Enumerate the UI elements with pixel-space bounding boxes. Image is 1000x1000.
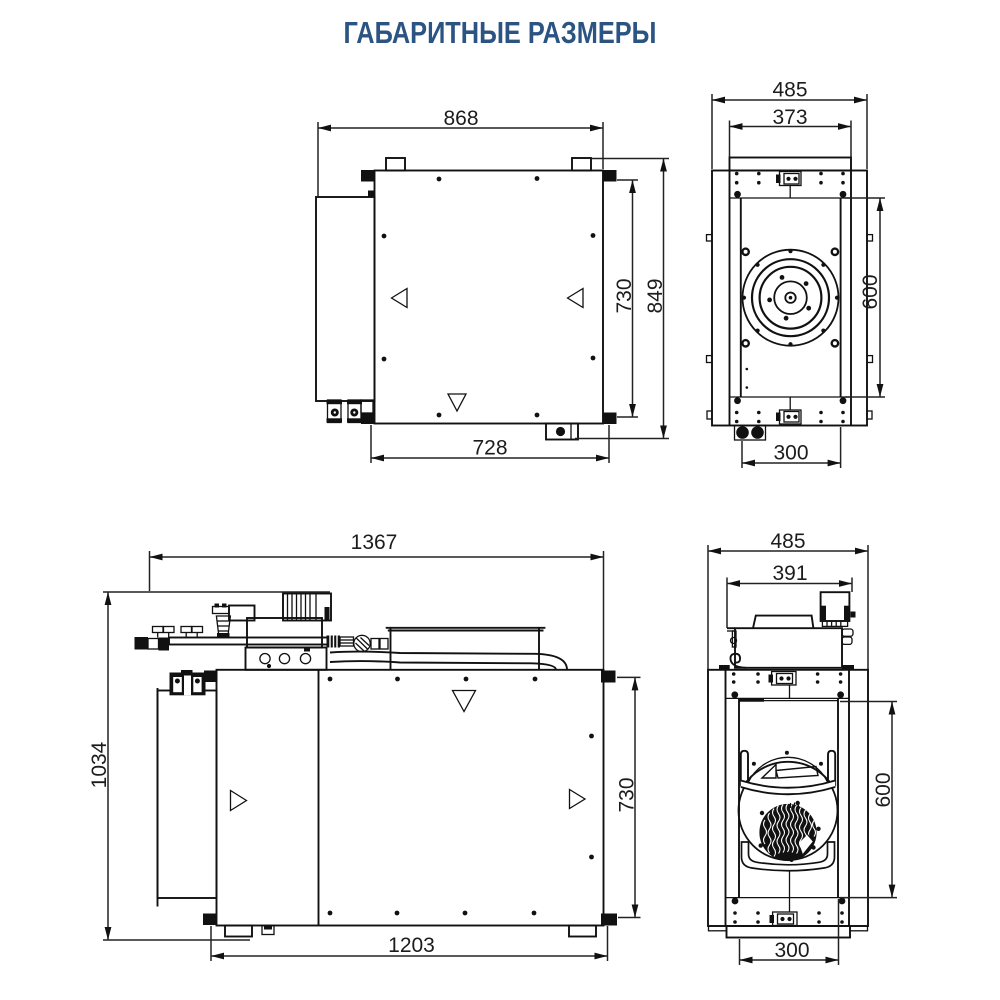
- svg-text:868: 868: [443, 107, 478, 130]
- svg-text:849: 849: [644, 278, 667, 313]
- svg-text:485: 485: [770, 530, 805, 553]
- svg-text:1034: 1034: [88, 741, 111, 788]
- svg-text:300: 300: [774, 939, 809, 962]
- svg-text:600: 600: [872, 772, 895, 807]
- svg-text:ГАБАРИТНЫЕ РАЗМЕРЫ: ГАБАРИТНЫЕ РАЗМЕРЫ: [344, 15, 657, 50]
- svg-text:485: 485: [772, 79, 807, 102]
- svg-text:728: 728: [472, 437, 507, 460]
- svg-text:391: 391: [772, 562, 807, 585]
- svg-text:373: 373: [772, 106, 807, 129]
- svg-text:730: 730: [613, 278, 636, 313]
- svg-text:1367: 1367: [351, 531, 398, 554]
- svg-text:1203: 1203: [388, 934, 435, 957]
- svg-text:300: 300: [773, 442, 808, 465]
- svg-text:730: 730: [616, 777, 639, 812]
- svg-text:600: 600: [859, 274, 882, 309]
